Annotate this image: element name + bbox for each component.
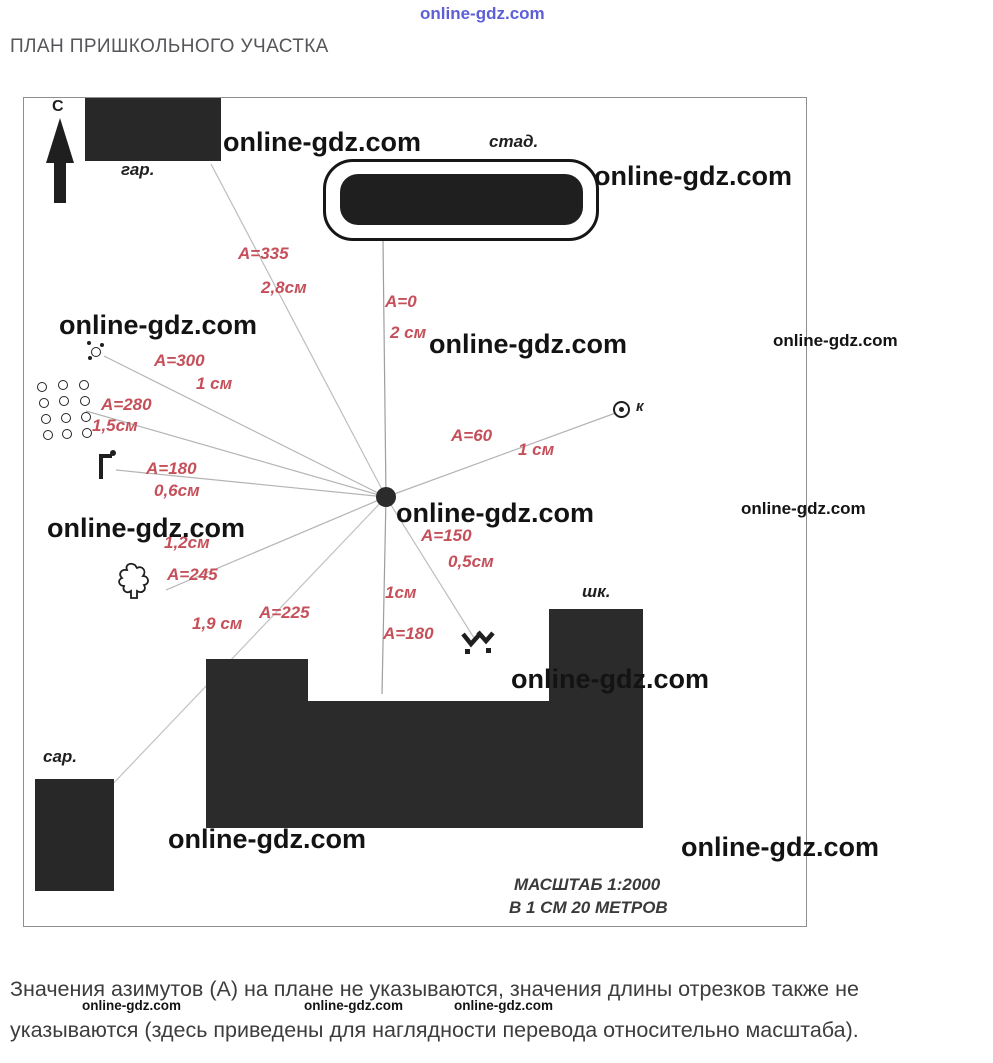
north-arrow-shaft bbox=[54, 161, 66, 203]
ray-tree-azimuth: A=245 bbox=[167, 565, 218, 585]
ray-spring-azimuth: A=150 bbox=[421, 526, 472, 546]
ray-gate-azimuth: A=180 bbox=[146, 459, 197, 479]
well-icon bbox=[87, 341, 107, 363]
ray-garage-azimuth: A=335 bbox=[238, 244, 289, 264]
ray-well-length: 1 см bbox=[196, 374, 232, 394]
point-k-dot bbox=[619, 407, 624, 412]
stadium-field bbox=[340, 174, 583, 225]
page: online-gdz.com ПЛАН ПРИШКОЛЬНОГО УЧАСТКА… bbox=[0, 0, 993, 1063]
shed-label: сар. bbox=[43, 747, 77, 767]
orchard-icon bbox=[37, 380, 93, 442]
watermark: online-gdz.com bbox=[59, 310, 257, 341]
scale-line2: В 1 СМ 20 МЕТРОВ bbox=[509, 898, 668, 918]
ray-point-k-length: 1 см bbox=[518, 440, 554, 460]
watermark: online-gdz.com bbox=[304, 998, 403, 1013]
ray-garage-length: 2,8см bbox=[261, 278, 307, 298]
watermark: online-gdz.com bbox=[594, 161, 792, 192]
center-point bbox=[376, 487, 396, 507]
watermark: online-gdz.com bbox=[681, 832, 879, 863]
watermark: online-gdz.com bbox=[47, 513, 245, 544]
school-plot-map: С гар. стад. шк. сар. к bbox=[23, 97, 807, 927]
ray-school-length: 1см bbox=[385, 583, 417, 603]
spring-icon bbox=[459, 628, 497, 656]
ray-well-azimuth: A=300 bbox=[154, 351, 205, 371]
watermark: online-gdz.com bbox=[454, 998, 553, 1013]
gate-icon bbox=[99, 450, 117, 480]
ray-stadium-azimuth: A=0 bbox=[385, 292, 417, 312]
footnote-line2: указываются (здесь приведены для наглядн… bbox=[10, 1018, 859, 1043]
ray-gate-length: 0,6см bbox=[154, 481, 200, 501]
watermark: online-gdz.com bbox=[420, 4, 545, 24]
stadium-track bbox=[323, 159, 599, 241]
ray-orchard-azimuth: A=280 bbox=[101, 395, 152, 415]
ray-shed-length: 1,9 см bbox=[192, 614, 242, 634]
north-label: С bbox=[52, 98, 64, 116]
watermark: online-gdz.com bbox=[82, 998, 181, 1013]
ray-stadium-length: 2 см bbox=[390, 323, 426, 343]
north-arrow-icon bbox=[46, 118, 74, 163]
ray-orchard-length: 1,5см bbox=[92, 416, 138, 436]
ray-school-azimuth: A=180 bbox=[383, 624, 434, 644]
page-title: ПЛАН ПРИШКОЛЬНОГО УЧАСТКА bbox=[10, 36, 329, 58]
shed-building bbox=[35, 779, 114, 891]
watermark: online-gdz.com bbox=[168, 824, 366, 855]
watermark: online-gdz.com bbox=[223, 127, 421, 158]
tree-icon bbox=[116, 562, 154, 602]
point-k-label: к bbox=[636, 398, 644, 415]
stadium-label: стад. bbox=[489, 132, 538, 152]
scale-line1: МАСШТАБ 1:2000 bbox=[514, 875, 660, 895]
ray-spring-length: 0,5см bbox=[448, 552, 494, 572]
school-label: шк. bbox=[582, 582, 610, 602]
ray-point-k-azimuth: A=60 bbox=[451, 426, 492, 446]
point-k-marker bbox=[613, 401, 630, 418]
watermark: online-gdz.com bbox=[773, 331, 898, 351]
watermark: online-gdz.com bbox=[396, 498, 594, 529]
watermark: online-gdz.com bbox=[429, 329, 627, 360]
garage-building bbox=[85, 98, 221, 161]
watermark: online-gdz.com bbox=[741, 499, 866, 519]
garage-label: гар. bbox=[121, 160, 154, 180]
watermark: online-gdz.com bbox=[511, 664, 709, 695]
ray-shed-azimuth: A=225 bbox=[259, 603, 310, 623]
